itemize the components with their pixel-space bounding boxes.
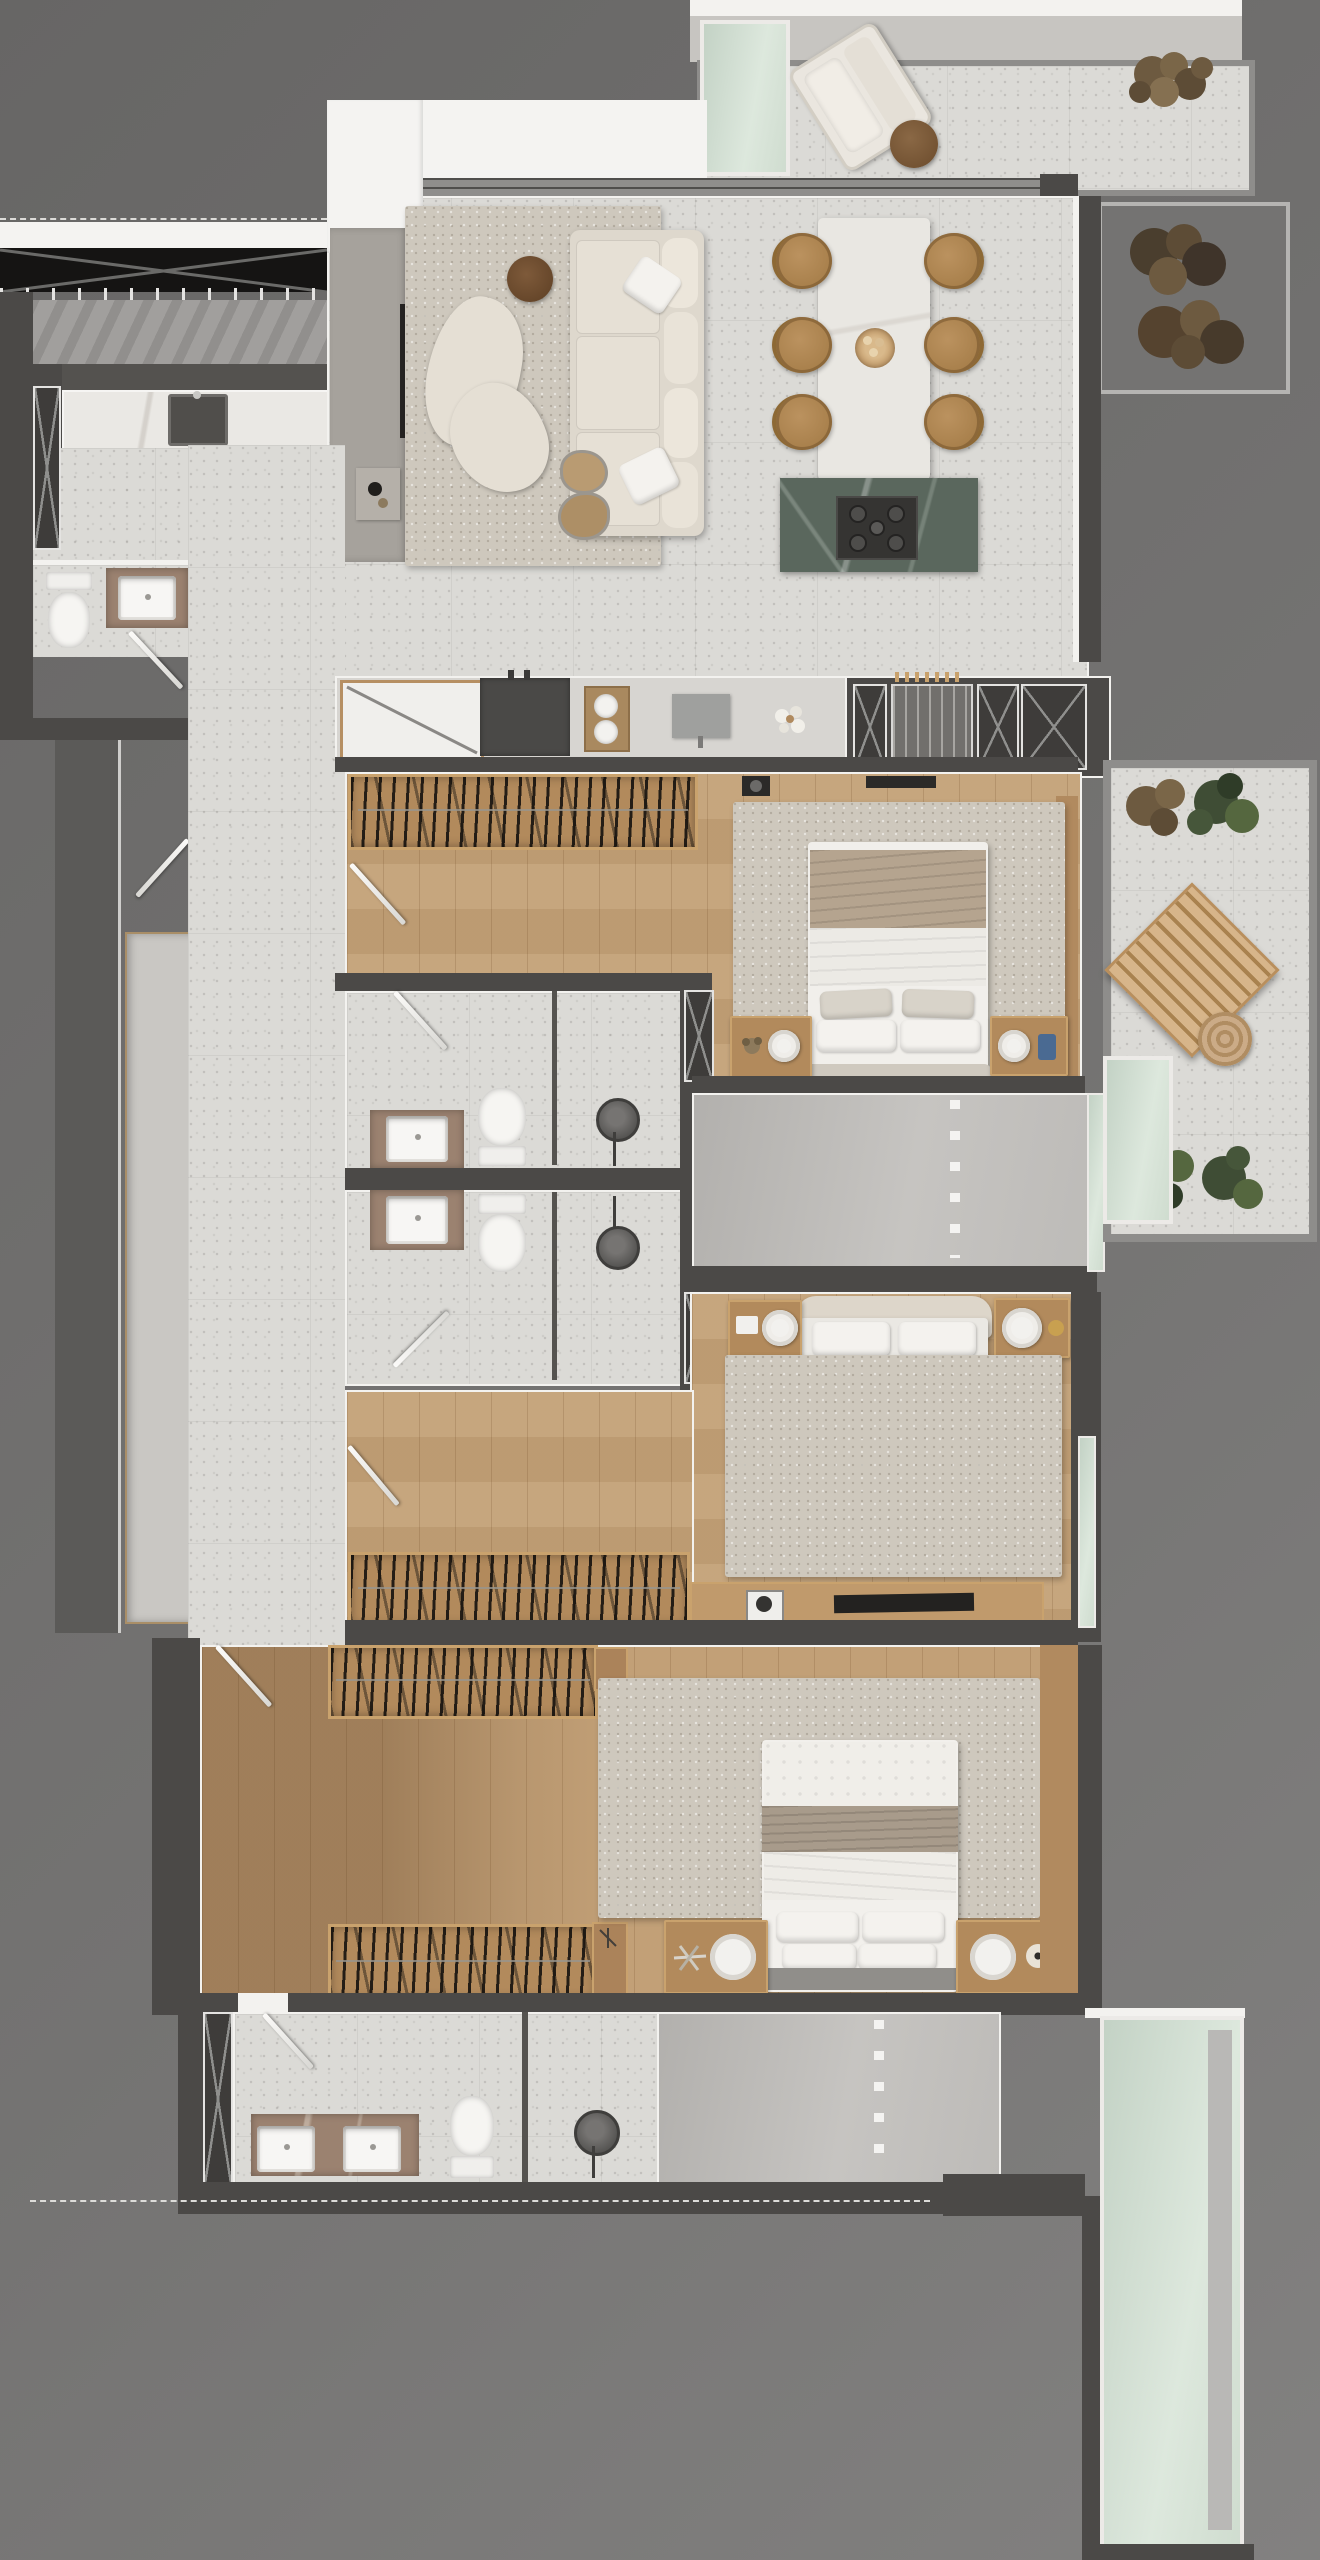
range-knob-icon xyxy=(524,670,530,680)
bathrooms-divider-wall xyxy=(345,1168,680,1190)
floor-plan-canvas: { "document_title": "apartment-floor-pla… xyxy=(0,0,1320,2560)
suite1-nightstand xyxy=(730,1016,812,1078)
pillow xyxy=(902,989,975,1019)
terrace-plant-icon xyxy=(1112,40,1222,132)
bathroom1-toilet-bowl xyxy=(478,1088,526,1146)
device-icon xyxy=(736,1316,758,1334)
fruit-icon xyxy=(875,338,884,347)
suite2-nightstand xyxy=(728,1300,802,1358)
range-cabinet xyxy=(480,678,570,756)
sliding-door-track xyxy=(423,178,1075,198)
entry-dashed-line xyxy=(0,218,327,220)
master-closet-north xyxy=(328,1645,598,1719)
pillow xyxy=(812,1322,890,1356)
master-washbasin xyxy=(343,2126,401,2172)
suite1-nightstand xyxy=(990,1016,1068,1076)
powder-toilet-bowl xyxy=(48,592,90,648)
master-right-pillar xyxy=(1078,1645,1102,2015)
suite1-hanging-closet xyxy=(348,774,698,850)
pillow xyxy=(782,1944,856,1970)
bathroom1-glass-partition xyxy=(552,991,557,1165)
winter-garden-left-frame xyxy=(1082,2196,1100,2560)
headboard xyxy=(756,1968,964,1990)
bathroom2-glass-partition xyxy=(552,1192,557,1380)
property-dashed-line xyxy=(30,2200,930,2202)
master-window-ledge xyxy=(1040,1645,1078,2010)
pillow xyxy=(900,1020,980,1052)
pillow xyxy=(862,1912,944,1942)
terrace-parapet xyxy=(690,0,1242,16)
louver-shade-floor xyxy=(0,300,327,364)
floor-decor-object xyxy=(558,492,610,540)
mp1-top-wall xyxy=(692,1076,1085,1093)
dining-chair xyxy=(772,317,832,373)
dashed-projection-line xyxy=(874,2020,884,2172)
bowl-icon xyxy=(594,694,618,718)
mp1-bottom-wall xyxy=(692,1266,1097,1292)
bed-throw-band xyxy=(762,1806,958,1852)
floor-decor-object xyxy=(560,450,608,494)
centerpiece-bowl xyxy=(855,328,895,368)
garden-pouf xyxy=(1198,1012,1252,1066)
suite1-bed xyxy=(808,842,988,1080)
glass-skylight xyxy=(700,20,790,176)
master-bed xyxy=(762,1740,958,1992)
bathroom1-rain-shower xyxy=(596,1098,640,1142)
console-table xyxy=(356,468,400,520)
master-left-wall xyxy=(152,1638,200,2013)
counter-upper-shelf xyxy=(62,364,327,390)
multipurpose-room-1-floor xyxy=(692,1093,1089,1272)
entry-storage-x-door xyxy=(33,386,61,550)
bottom-left-wall xyxy=(178,2008,206,2184)
master-toilet-bowl xyxy=(450,2096,494,2156)
master-closet-south xyxy=(328,1924,598,2002)
pillow xyxy=(898,1322,976,1356)
living-right-wall xyxy=(1079,196,1101,662)
master-toilet-tank xyxy=(450,2156,494,2178)
shower-arm xyxy=(613,1196,616,1230)
round-speaker-icon xyxy=(998,1030,1030,1062)
pillow xyxy=(858,1944,936,1970)
master-rain-shower xyxy=(574,2110,620,2156)
speaker-icon xyxy=(750,780,762,792)
master-nightstand xyxy=(664,1920,768,1994)
sofa-seat-cushion xyxy=(576,336,660,430)
cooktop xyxy=(836,496,918,560)
pantry-peg-row xyxy=(895,672,965,682)
pergola-x-brace-icon xyxy=(0,248,327,292)
dining-chair xyxy=(772,394,832,450)
dining-chair xyxy=(924,394,984,450)
bathroom1-toilet-tank xyxy=(478,1146,526,1166)
suite1-top-wall xyxy=(335,757,1078,772)
entry-parapet xyxy=(0,222,327,248)
balcony-plant-north-icon xyxy=(1112,766,1272,856)
fruit-icon xyxy=(869,348,878,357)
tv-panel xyxy=(834,1593,974,1613)
record-player-icon xyxy=(746,1590,784,1622)
multipurpose-room-2-floor xyxy=(657,2012,1001,2186)
bed-sheet-fold xyxy=(810,928,986,986)
bed-sheet-fold xyxy=(764,1852,956,1900)
quilted-duvet xyxy=(764,1742,956,1806)
suite2-rug xyxy=(725,1355,1062,1577)
right-terrace-plant-icon xyxy=(1104,212,1274,382)
foyer-bottom-wall xyxy=(0,718,188,740)
console-decor-icon xyxy=(368,482,382,496)
master-washbasin xyxy=(257,2126,315,2172)
pillow xyxy=(816,1020,896,1052)
powder-toilet-tank xyxy=(46,572,92,590)
master-glass-partition xyxy=(522,2012,528,2182)
pillow xyxy=(819,988,892,1020)
sofa-back-cushion xyxy=(664,388,698,458)
console-decor-icon xyxy=(378,498,388,508)
suite2-nightstand xyxy=(994,1298,1070,1358)
speaker-shelf xyxy=(742,776,770,796)
side-court xyxy=(55,740,121,1633)
bathroom2-toilet-bowl xyxy=(478,1214,526,1272)
flower-decor-icon xyxy=(768,702,812,738)
round-speaker-icon xyxy=(1002,1308,1042,1348)
sofa-back-cushion xyxy=(664,312,698,384)
round-tray-icon xyxy=(970,1934,1016,1980)
twig-decor-icon xyxy=(668,1940,712,1976)
fruit-icon xyxy=(863,336,872,345)
bathroom2-rain-shower xyxy=(596,1226,640,1270)
master-bath-shaft-x xyxy=(203,2012,233,2186)
shower-arm xyxy=(592,2146,595,2178)
round-speaker-icon xyxy=(768,1030,800,1062)
round-speaker-icon xyxy=(762,1310,798,1346)
dashed-projection-line xyxy=(950,1100,960,1258)
pillow xyxy=(776,1912,858,1942)
bottom-band-wall xyxy=(178,2182,1068,2214)
side-court-door-leaf xyxy=(135,838,190,898)
dining-chair xyxy=(924,233,984,289)
bathroom2-washbasin xyxy=(386,1196,448,1244)
dresser-decor-icon xyxy=(594,1924,622,1952)
winter-garden-end-bar xyxy=(1092,2544,1254,2560)
duct-shaft-x xyxy=(684,990,714,1082)
dining-chair xyxy=(772,233,832,289)
phone-icon xyxy=(1038,1034,1056,1060)
ottoman xyxy=(890,120,938,168)
dining-chair xyxy=(924,317,984,373)
suite1-tv-shelf xyxy=(866,776,936,788)
board-diagonal-icon xyxy=(343,683,481,757)
suite2-hanging-closet xyxy=(348,1552,690,1628)
range-knob-icon xyxy=(508,670,514,680)
winter-garden-side-band xyxy=(1208,2030,1232,2530)
counter-sink xyxy=(168,394,228,446)
round-side-table xyxy=(507,256,553,302)
bed-throw-blanket xyxy=(810,850,986,928)
plant-sprig-icon xyxy=(738,1032,766,1060)
round-tray-icon xyxy=(710,1934,756,1980)
suite1-bottom-wall xyxy=(335,973,695,991)
gold-dish-icon xyxy=(1048,1320,1064,1336)
board-handle xyxy=(698,736,703,748)
serving-tray xyxy=(584,686,630,752)
prep-board xyxy=(672,694,730,738)
disc-icon xyxy=(756,1596,772,1612)
bathroom2-toilet-tank xyxy=(478,1194,526,1214)
suite2-glass-strip xyxy=(1078,1436,1096,1628)
master-dresser-south xyxy=(592,1922,628,2000)
bathroom1-washbasin xyxy=(386,1116,448,1162)
hallway-floor xyxy=(188,445,345,1645)
entry-left-wall xyxy=(0,292,33,740)
powder-washbasin xyxy=(118,576,176,620)
balcony-glass-guard xyxy=(1103,1056,1173,1224)
pergola-canopy xyxy=(0,248,327,292)
faucet-icon xyxy=(193,391,201,399)
bowl-icon xyxy=(594,720,618,744)
suite2-bottom-wall xyxy=(345,1620,1078,1647)
counter-board xyxy=(340,680,484,760)
living-top-wall-b xyxy=(423,100,707,178)
burner-icons xyxy=(838,498,916,558)
shower-arm xyxy=(613,1132,616,1166)
